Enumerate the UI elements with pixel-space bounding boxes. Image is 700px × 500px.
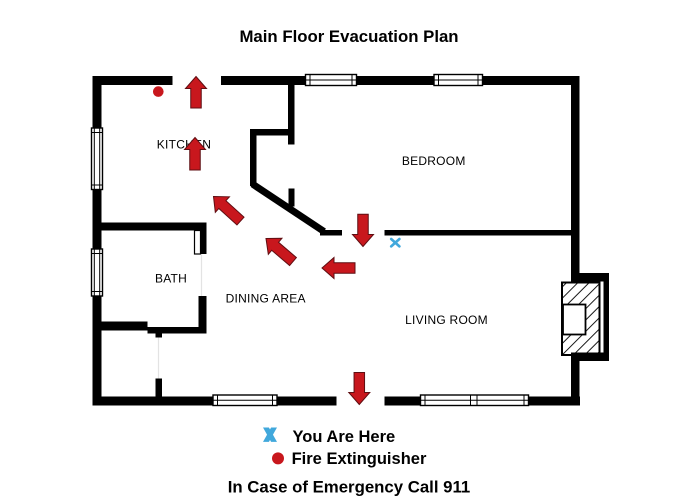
svg-text:Fire Extinguisher: Fire Extinguisher (292, 450, 427, 468)
svg-text:Main Floor Evacuation Plan: Main Floor Evacuation Plan (239, 27, 458, 46)
svg-text:LIVING ROOM: LIVING ROOM (405, 313, 488, 327)
svg-text:BATH: BATH (155, 271, 187, 285)
svg-text:BEDROOM: BEDROOM (402, 154, 466, 168)
svg-text:DINING AREA: DINING AREA (226, 292, 306, 306)
svg-text:You Are Here: You Are Here (293, 428, 396, 446)
svg-text:In Case of Emergency Call 911: In Case of Emergency Call 911 (228, 477, 471, 496)
